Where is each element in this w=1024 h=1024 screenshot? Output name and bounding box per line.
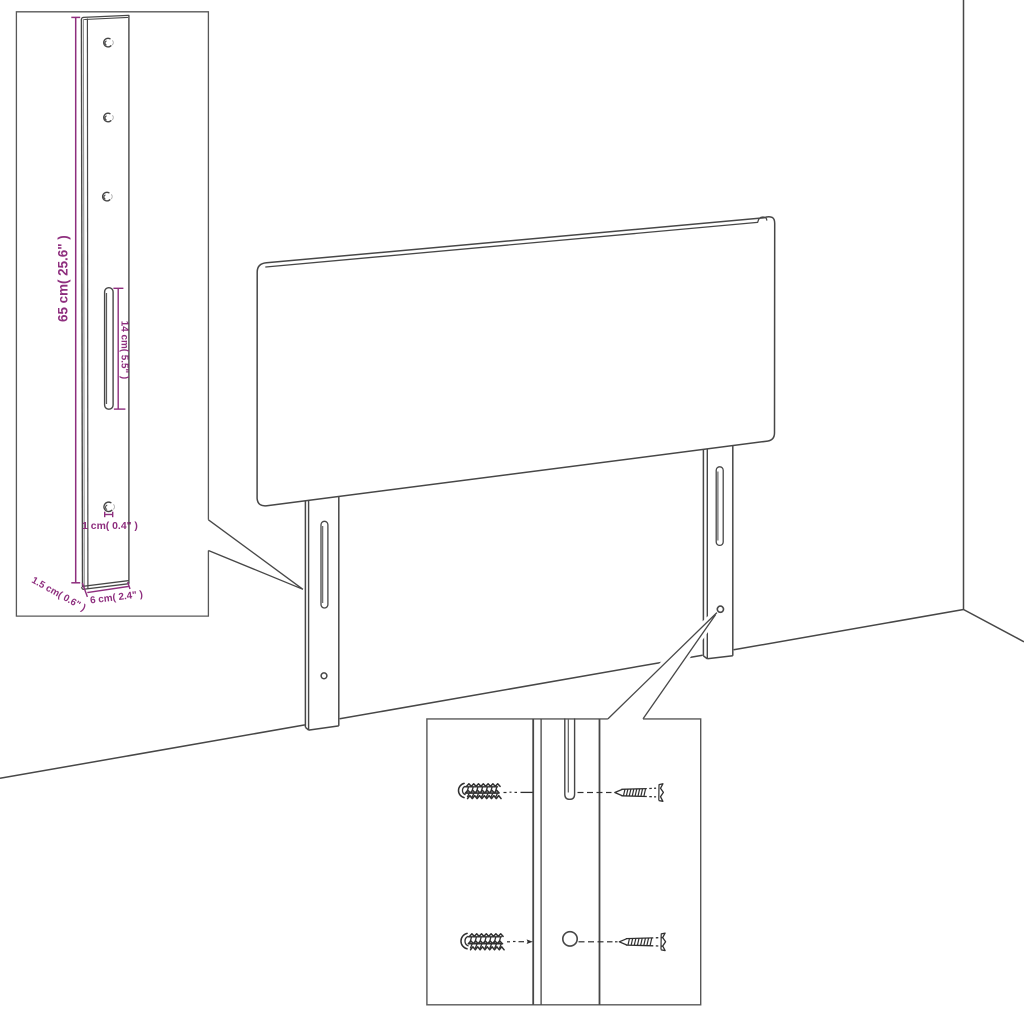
svg-text:1 cm( 0.4" ): 1 cm( 0.4" )	[82, 521, 138, 532]
svg-text:65 cm( 25.6" ): 65 cm( 25.6" )	[55, 235, 70, 322]
svg-text:14 cm( 5.5" ): 14 cm( 5.5" )	[119, 321, 130, 379]
